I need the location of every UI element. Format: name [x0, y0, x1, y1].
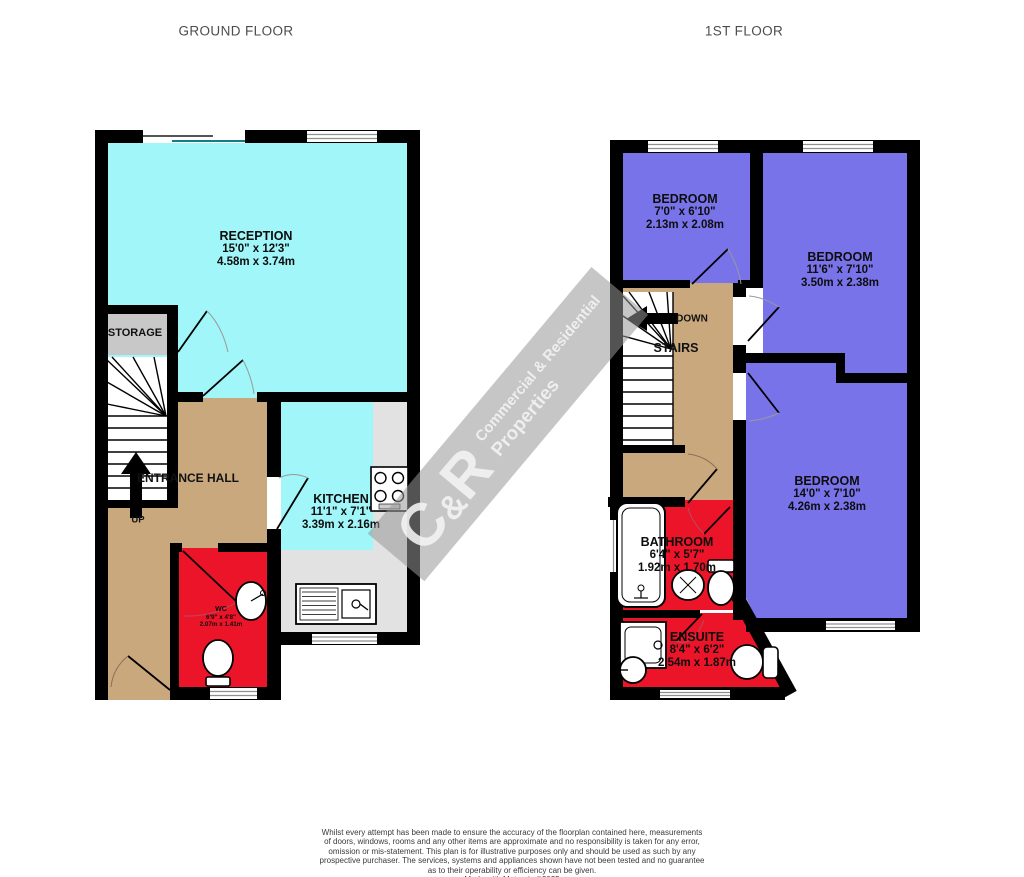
disclaimer-line: Whilst every attempt has been made to en…: [0, 828, 1024, 837]
bedroom3-window: [826, 621, 895, 630]
down-label: DOWN: [676, 314, 708, 325]
bathroom-label: BATHROOM 6'4" x 5'7" 1.92m x 1.70m: [638, 535, 716, 575]
ensuite-basin-icon: [620, 657, 646, 683]
bedroom2-label: BEDROOM 11'6" x 7'10" 3.50m x 2.38m: [801, 250, 879, 290]
reception-window: [307, 131, 377, 142]
wc-toilet-icon: [203, 640, 233, 686]
disclaimer-text: Whilst every attempt has been made to en…: [0, 828, 1024, 877]
entrance-hall-floor-left: [107, 507, 167, 688]
bedroom1-label: BEDROOM 7'0" x 6'10" 2.13m x 2.08m: [646, 192, 724, 232]
floorplan-page: GROUND FLOOR 1ST FLOOR RECEPTION 15'0" x…: [0, 0, 1024, 877]
disclaimer-line: omission or mis-statement. This plan is …: [0, 847, 1024, 856]
bedroom3-label: BEDROOM 14'0" x 7'10" 4.26m x 2.38m: [788, 474, 866, 514]
disclaimer-line: prospective purchaser. The services, sys…: [0, 856, 1024, 865]
entrance-hall-label: ENTRANCE HALL: [137, 471, 239, 485]
ground-floor-plan: [95, 130, 420, 700]
wc-label: WC 6'9" x 4'8" 2.07m x 1.41m: [200, 606, 243, 628]
kitchen-label: KITCHEN 11'1" x 7'1" 3.39m x 2.16m: [302, 492, 380, 532]
ensuite-label: ENSUITE 8'4" x 6'2" 2.54m x 1.87m: [658, 630, 736, 670]
first-floor-title: 1ST FLOOR: [705, 24, 783, 39]
ground-floor-title: GROUND FLOOR: [178, 24, 293, 39]
bedroom2-window: [803, 141, 873, 152]
disclaimer-line: of doors, windows, rooms and any other i…: [0, 837, 1024, 846]
disclaimer-line: as to their operability or efficiency ca…: [0, 866, 1024, 875]
kitchen-window: [312, 634, 377, 644]
ensuite-toilet-icon: [731, 645, 778, 679]
front-door-opening: [108, 687, 170, 700]
ensuite-window: [660, 690, 730, 698]
stairs-label: STAIRS: [654, 341, 699, 355]
storage-label: STORAGE: [108, 327, 162, 339]
kitchen-sink-icon: [296, 584, 376, 624]
reception-label: RECEPTION 15'0" x 12'3" 4.58m x 3.74m: [217, 229, 295, 269]
up-label: UP: [131, 515, 144, 526]
wc-window: [210, 688, 257, 699]
bedroom1-window: [648, 141, 718, 152]
